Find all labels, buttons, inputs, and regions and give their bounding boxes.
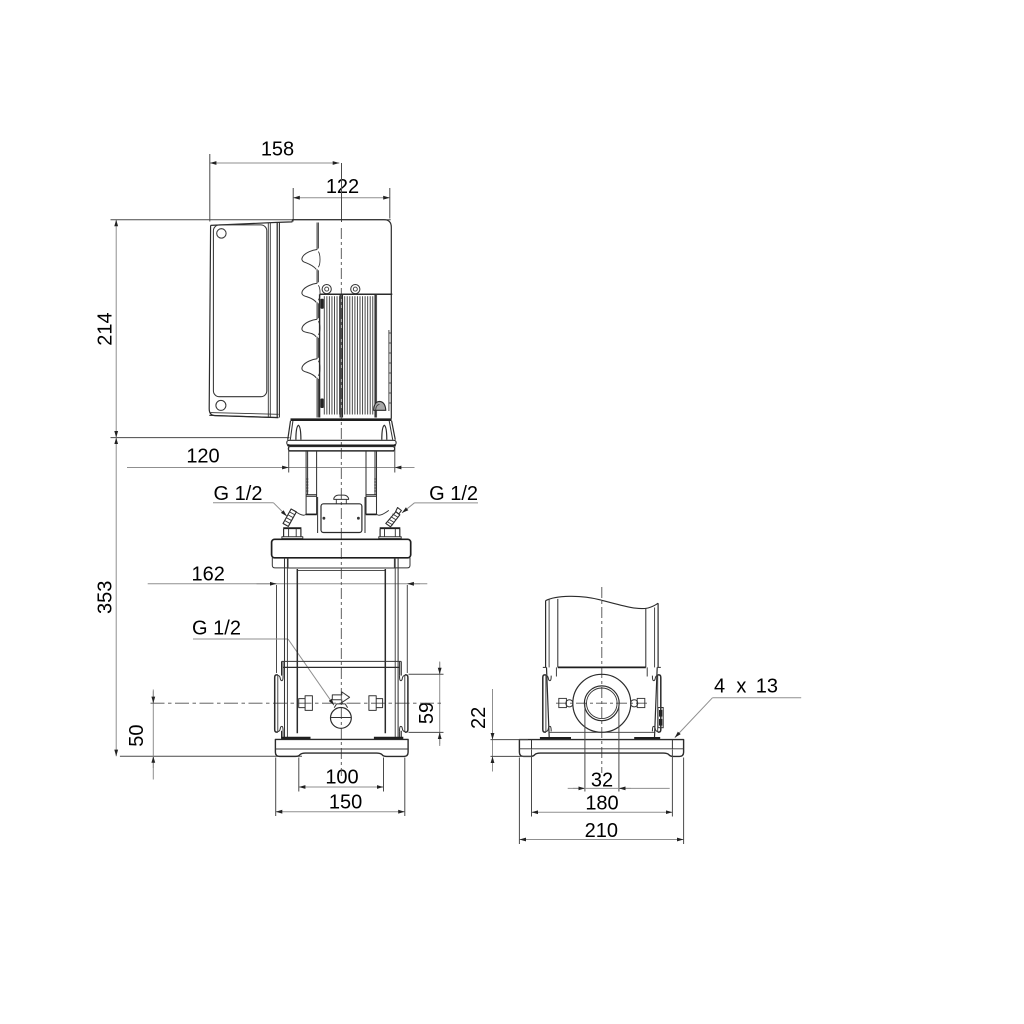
svg-text:162: 162 xyxy=(192,563,225,585)
svg-text:158: 158 xyxy=(261,138,294,160)
svg-text:120: 120 xyxy=(186,445,219,467)
svg-text:100: 100 xyxy=(325,767,358,789)
svg-text:180: 180 xyxy=(585,793,618,815)
svg-text:214: 214 xyxy=(94,312,116,345)
svg-text:G 1/2: G 1/2 xyxy=(214,483,263,505)
svg-text:210: 210 xyxy=(585,820,618,842)
svg-text:4: 4 xyxy=(714,676,725,698)
svg-text:59: 59 xyxy=(416,702,438,724)
svg-text:x: x xyxy=(736,676,746,698)
svg-text:32: 32 xyxy=(591,769,613,791)
svg-text:353: 353 xyxy=(94,581,116,614)
svg-text:22: 22 xyxy=(468,707,490,729)
svg-text:13: 13 xyxy=(756,676,778,698)
svg-text:G 1/2: G 1/2 xyxy=(192,617,241,639)
svg-text:50: 50 xyxy=(126,724,148,746)
svg-text:G 1/2: G 1/2 xyxy=(429,483,478,505)
svg-text:122: 122 xyxy=(326,176,359,198)
svg-text:150: 150 xyxy=(329,792,362,814)
